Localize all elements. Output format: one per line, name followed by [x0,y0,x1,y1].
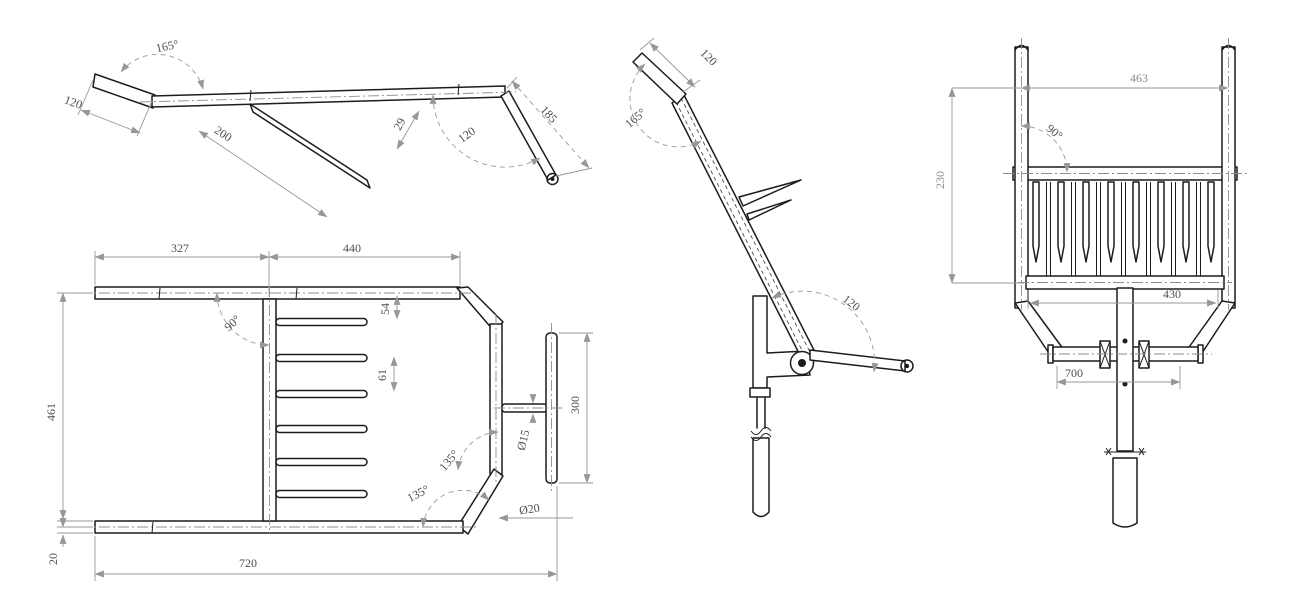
dim-label-bend-angle: 165° [155,37,180,55]
pin [1183,182,1189,262]
angle-arc-90 [217,293,269,345]
dim-label-right-span: 440 [343,241,361,255]
center-post [1117,288,1133,451]
dim-label-basket-depth: 230 [933,171,947,189]
dim-label-first-tine-offset: 54 [378,303,392,315]
tine [276,459,367,466]
pin [1058,182,1064,262]
tine-pins [1033,182,1214,262]
dim-label-axle-width: 700 [1065,366,1083,380]
post-bolt-upper [1123,339,1128,344]
dim-label-lever-angle: 120 [840,292,863,314]
pin [1158,182,1164,262]
left-end-segment [93,74,155,108]
dim-label-tube-diameter: Ø20 [518,501,540,518]
tine [276,319,367,326]
blade-fin-lower [747,200,791,220]
post-collar [750,388,770,397]
lower-leg-front [1113,458,1137,527]
tine [276,426,367,433]
pin [1208,182,1214,262]
main-rail [152,86,505,107]
dim-label-bar-angle: 120 [455,124,478,146]
technical-drawing: 165° 120 200 29 120 185 [0,0,1299,611]
dim-label-chamfer-lower: 135° [405,482,432,505]
lever-rod [810,350,905,371]
dim-label-frame-depth: 461 [44,403,58,421]
tines [276,319,367,498]
blade-fin-upper [739,180,801,206]
dim-label-crossbar-diameter: Ø15 [514,428,533,451]
plan-view: 327 440 90° 54 61 461 20 720 135° 135° Ø… [44,241,593,581]
dim-label-overall-width: 720 [239,556,257,570]
inclined-tube [672,95,818,367]
dim-label-post-span: 463 [1130,71,1148,85]
diagonal-strut [250,104,370,188]
bar-end-dot [551,177,555,181]
post-thin-section [757,397,765,428]
frame-tubes-edge-on [1047,182,1201,276]
chamfer-bottom-right [458,469,503,534]
dim-label-bend-angle-assembled: 165° [622,105,649,131]
dim-label-rail-thickness: 20 [46,553,60,565]
side-profile-view: 165° 120 200 29 120 185 [63,37,592,217]
dim-label-post-angle: 90° [1044,121,1066,143]
pin [1108,182,1114,262]
side-assembled-view: 120 165° 120 [622,38,913,517]
tine [276,391,367,398]
pin [1033,182,1039,262]
dim-label-bar-length: 185 [538,103,561,126]
pin [1133,182,1139,262]
dim-label-tine-pitch: 61 [375,369,389,381]
lower-leg-tube [753,438,769,517]
dim-line-120 [81,110,140,133]
lever-end-dot [905,364,909,368]
tine [276,491,367,498]
angle-arc-165 [121,54,203,89]
pin [1083,182,1089,262]
dim-label-strut: 200 [212,123,235,145]
dim-label-left-span: 327 [171,241,189,255]
top-bent-segment [633,53,686,104]
dim-label-spine-angle: 90° [221,312,243,334]
tine [276,355,367,362]
front-view: 463 90° 230 430 700 [933,38,1247,527]
dim-label-tine-bar-width: 430 [1163,287,1181,301]
pivot-bolt [798,359,806,367]
dim-label-top-segment: 120 [698,46,721,69]
dim-label-offset: 29 [390,116,408,133]
dim-label-handle-length: 300 [568,396,582,414]
drawing-canvas: 165° 120 200 29 120 185 [0,0,1299,611]
dim-label-chamfer-upper: 135° [436,447,462,474]
